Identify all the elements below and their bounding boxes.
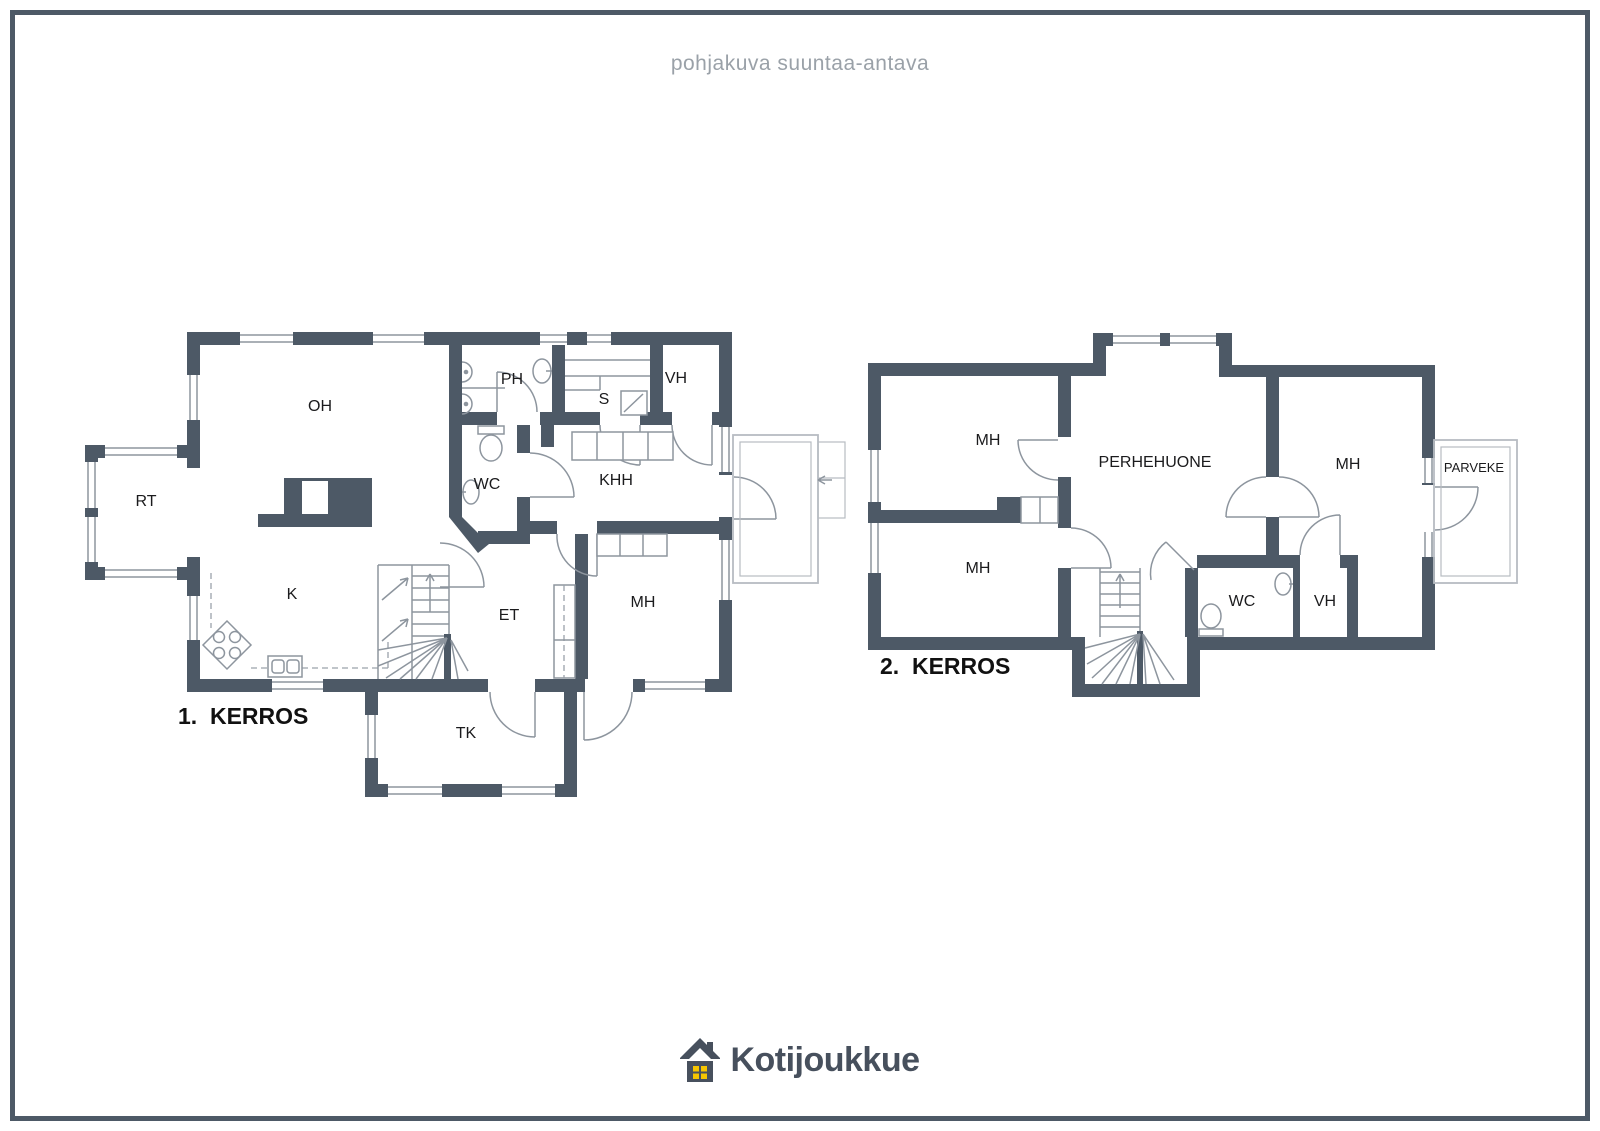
room-label-mh: MH [631, 594, 656, 611]
window [240, 332, 293, 345]
kotijoukkue-logo: Kotijoukkue [0, 1038, 1600, 1082]
room-label-parveke: PARVEKE [1444, 460, 1505, 475]
room-label-et: ET [499, 607, 520, 624]
logo-text: Kotijoukkue [730, 1041, 919, 1080]
room-label-wc: WC [474, 476, 501, 493]
room-label-mh3: MH [1336, 456, 1361, 473]
toilet-tank [478, 426, 504, 434]
door-arc [1071, 528, 1111, 568]
window [540, 332, 567, 345]
room-label-k: K [287, 586, 298, 603]
kitchen-sink-icon [268, 656, 302, 677]
window [187, 375, 200, 420]
window [105, 445, 177, 458]
toilet-icon [1201, 604, 1221, 628]
floor2-plan: MH MH PERHEHUONE MH PARVEKE WC VH 2. KER… [868, 333, 1517, 697]
door-arc [490, 692, 535, 737]
floor1-door-openings [585, 475, 732, 692]
stair-direction-arrow [1116, 574, 1124, 608]
door-arc [1279, 477, 1319, 517]
sauna-benches [565, 360, 650, 390]
shower-head [464, 370, 469, 375]
window [502, 784, 555, 797]
balcony-door-opening [1422, 485, 1435, 532]
room-label-perhehuone: PERHEHUONE [1099, 454, 1212, 471]
window [645, 679, 705, 692]
window [868, 450, 881, 502]
window [1422, 532, 1435, 557]
stair-break-mark [382, 578, 408, 600]
room-label-vh: VH [665, 370, 687, 387]
room-label-oh: OH [308, 398, 332, 415]
floor1-title: 1. KERROS [178, 703, 308, 729]
cabinet-row [597, 534, 667, 556]
door-arc [1226, 477, 1266, 517]
stove-icon [203, 621, 251, 669]
room-label-s: S [599, 391, 610, 408]
window [85, 462, 98, 508]
winder-treads [1085, 634, 1174, 684]
window [719, 427, 732, 472]
window [272, 679, 323, 692]
toilet-tank [1199, 629, 1223, 636]
stair-break-mark [382, 619, 408, 641]
fireplace [258, 478, 372, 527]
window [868, 523, 881, 573]
floor2-cabinet [1021, 497, 1058, 523]
room-label-rt: RT [135, 493, 156, 510]
room-label-vh2: VH [1314, 593, 1336, 610]
staircase-floor2 [1085, 568, 1174, 684]
floor2-title: 2. KERROS [880, 653, 1010, 679]
window [1170, 333, 1216, 346]
window [187, 596, 200, 640]
floorplan-drawing: OH RT PH S VH WC KHH ET MH K TK 1. KERRO… [0, 0, 1600, 1131]
terrace [733, 435, 845, 583]
floor1-plan: OH RT PH S VH WC KHH ET MH K TK 1. KERRO… [85, 332, 845, 797]
window [587, 332, 611, 345]
room-label-khh: KHH [599, 472, 633, 489]
toilet-icon [480, 435, 502, 461]
window [388, 784, 442, 797]
shower-head [464, 402, 469, 407]
stair-direction-arrow [426, 574, 434, 612]
window [365, 715, 378, 758]
room-label-wc2: WC [1229, 593, 1256, 610]
window [719, 540, 732, 600]
door-arc [1300, 515, 1340, 555]
window [105, 567, 177, 580]
door-arc [530, 453, 574, 497]
door-arc [584, 692, 632, 740]
window [1113, 333, 1160, 346]
winder-treads [378, 638, 468, 679]
room-label-ph: PH [501, 371, 523, 388]
house-icon [680, 1038, 720, 1082]
floor1-cabinets [554, 432, 673, 678]
window [85, 517, 98, 562]
steps-arrow [818, 476, 832, 484]
window [1422, 458, 1435, 483]
room-label-mh1: MH [976, 432, 1001, 449]
staircase-floor1 [378, 565, 468, 679]
door-arc [1018, 440, 1058, 480]
window [373, 332, 424, 345]
door-arc [672, 425, 712, 465]
room-label-tk: TK [456, 725, 477, 742]
sink-icon [1275, 573, 1291, 595]
chimney-block [997, 497, 1021, 523]
room-label-mh2: MH [966, 560, 991, 577]
